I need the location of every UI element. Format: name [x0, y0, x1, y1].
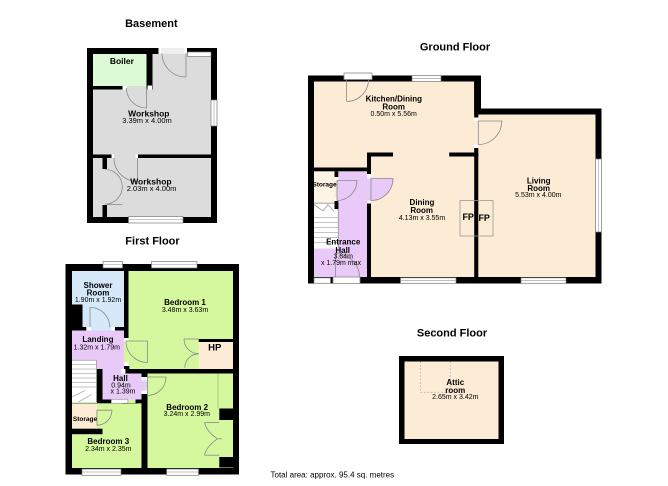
- svg-text:First Floor: First Floor: [125, 236, 180, 248]
- svg-text:2.34m x 2.35m: 2.34m x 2.35m: [85, 446, 131, 453]
- svg-text:Basement: Basement: [125, 18, 178, 30]
- svg-text:4.13m x 3.55m: 4.13m x 3.55m: [399, 215, 445, 222]
- svg-text:FP: FP: [478, 213, 490, 223]
- svg-text:HP: HP: [208, 343, 222, 354]
- svg-text:Room: Room: [410, 206, 433, 215]
- svg-text:FP: FP: [462, 212, 474, 222]
- svg-text:Storage: Storage: [73, 416, 98, 423]
- svg-text:Boiler: Boiler: [110, 56, 135, 66]
- svg-text:Second Floor: Second Floor: [417, 328, 488, 340]
- svg-text:Landing: Landing: [82, 335, 113, 344]
- svg-text:0.50m x 5.56m: 0.50m x 5.56m: [371, 111, 417, 118]
- svg-text:x 1.79m max: x 1.79m max: [321, 260, 362, 267]
- svg-text:Ground Floor: Ground Floor: [420, 42, 491, 54]
- svg-text:Bedroom 3: Bedroom 3: [87, 437, 129, 446]
- svg-text:2.03m x 4.00m: 2.03m x 4.00m: [127, 184, 177, 193]
- svg-text:3.24m x 2.99m: 3.24m x 2.99m: [164, 411, 210, 418]
- svg-text:Total area: approx. 95.4 sq. m: Total area: approx. 95.4 sq. metres: [271, 471, 395, 480]
- svg-text:1.32m x 1.79m: 1.32m x 1.79m: [74, 344, 120, 351]
- svg-text:3.39m x 4.00m: 3.39m x 4.00m: [122, 116, 172, 125]
- svg-text:2.65m x 3.42m: 2.65m x 3.42m: [432, 394, 478, 401]
- svg-text:Room: Room: [87, 289, 110, 298]
- svg-text:5.53m x 4.00m: 5.53m x 4.00m: [515, 192, 561, 199]
- svg-text:Storage: Storage: [312, 182, 337, 189]
- svg-text:x 1.39m: x 1.39m: [111, 388, 136, 395]
- svg-text:3.48m x 3.63m: 3.48m x 3.63m: [162, 307, 208, 314]
- svg-text:1.90m x 1.92m: 1.90m x 1.92m: [75, 297, 121, 304]
